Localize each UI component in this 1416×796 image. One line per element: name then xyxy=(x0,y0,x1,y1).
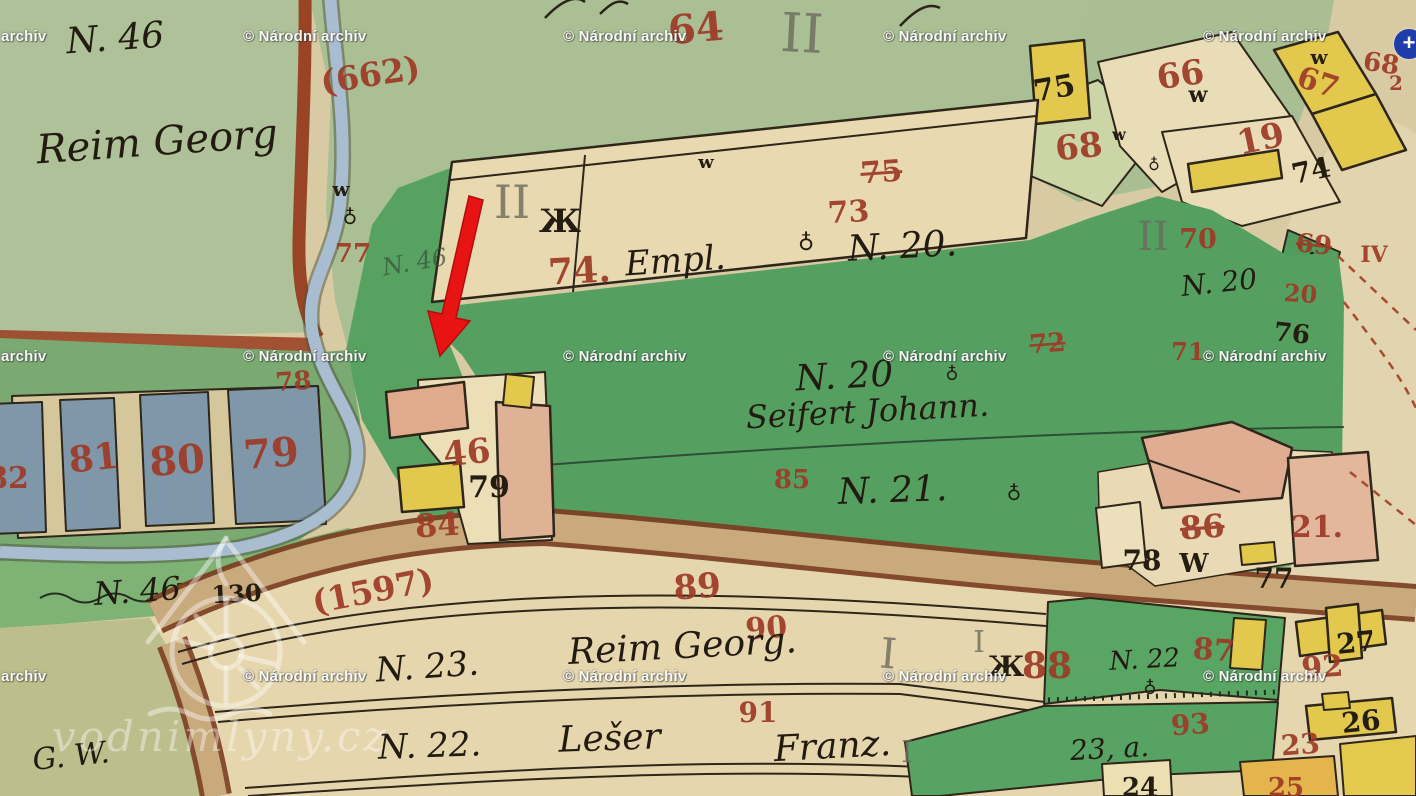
map-label-23: 23 xyxy=(1280,727,1321,763)
map-label-82: 82 xyxy=(0,461,29,496)
map-label-w: w xyxy=(1111,125,1127,144)
map-label-76: 76 xyxy=(1272,317,1311,351)
house-pink-21 xyxy=(1288,452,1378,566)
map-label-w: w xyxy=(697,152,714,173)
map-label-79: 79 xyxy=(468,470,510,505)
map-label-iv: IV xyxy=(1360,242,1388,268)
map-label-ii: II xyxy=(1137,214,1169,260)
map-label-24: 24 xyxy=(1122,773,1158,796)
building-yellow-87 xyxy=(1230,618,1266,670)
map-label-n-46: N. 46 xyxy=(64,15,166,63)
map-label-franz: Franz. xyxy=(772,723,892,770)
map-label-26: 26 xyxy=(1340,703,1382,740)
cadastral-map-image: 64(662)757374.7778(1597)8281807946848572… xyxy=(0,0,1416,796)
map-label-77: 77 xyxy=(1255,562,1294,595)
house-pink-a xyxy=(386,382,468,438)
map-label-72: 72 xyxy=(1028,328,1066,360)
map-label-i: I xyxy=(973,625,985,660)
map-label-69: 69 xyxy=(1294,228,1333,262)
map-label-ii: II xyxy=(779,1,825,66)
zoom-in-button[interactable]: + xyxy=(1394,29,1416,59)
map-label-: ♁ xyxy=(1148,155,1160,174)
building-corner xyxy=(1340,736,1416,796)
map-label-71: 71 xyxy=(1171,337,1204,366)
map-label-88: 88 xyxy=(1022,645,1072,687)
map-label-75: 75 xyxy=(859,154,903,192)
map-label-: ♁ xyxy=(945,364,958,385)
map-label-25: 25 xyxy=(1268,773,1304,796)
map-label-77: 77 xyxy=(335,239,371,269)
map-label-89: 89 xyxy=(672,565,722,608)
map-label-w: W xyxy=(1178,549,1209,579)
map-label-70: 70 xyxy=(1179,224,1217,255)
map-label-85: 85 xyxy=(774,465,810,495)
map-label-80: 80 xyxy=(148,435,207,486)
map-label-i: I xyxy=(901,735,913,770)
map-label-le-er: Lešer xyxy=(557,716,663,761)
map-label-: ♁ xyxy=(798,231,814,256)
map-label-n-20: N. 20. xyxy=(846,223,958,270)
map-label-86: 86 xyxy=(1179,507,1226,548)
map-label-: ♁ xyxy=(1007,481,1022,505)
map-label-n-46: N. 46 xyxy=(92,569,182,613)
map-label-74: 74. xyxy=(547,248,612,293)
map-label-: Ж xyxy=(539,202,581,240)
map-label-n-22: N. 22 xyxy=(1107,643,1180,677)
map-label-68: 68 xyxy=(1053,125,1104,170)
map-label-ii: II xyxy=(494,175,530,229)
map-label-: Ж xyxy=(988,650,1025,683)
map-label-n-21: N. 21. xyxy=(836,468,948,513)
map-label-21: 21. xyxy=(1291,510,1343,545)
map-label-27: 27 xyxy=(1335,624,1377,661)
map-label-: ♁ xyxy=(343,205,358,229)
map-label-n-23: N. 23. xyxy=(373,643,480,690)
map-label-64: 64 xyxy=(666,3,726,55)
map-label-75: 75 xyxy=(1031,68,1078,110)
map-label-81: 81 xyxy=(67,435,121,482)
map-label-: ♁ xyxy=(1143,678,1156,699)
building-yellow-a xyxy=(503,374,534,408)
map-label-78: 78 xyxy=(1123,544,1162,577)
map-label-23-a: 23, a. xyxy=(1068,730,1150,767)
map-label-79: 79 xyxy=(242,428,301,479)
map-label-73: 73 xyxy=(827,194,871,231)
map-label-46: 46 xyxy=(441,431,492,476)
map-label-87: 87 xyxy=(1192,632,1236,670)
map-label-91: 91 xyxy=(739,696,778,729)
map-label-93: 93 xyxy=(1170,707,1211,743)
map-label-n-22: N. 22. xyxy=(376,724,482,768)
map-label-84: 84 xyxy=(414,505,461,546)
map-label-2: 2 xyxy=(1389,71,1403,95)
map-label-empl: Empl. xyxy=(623,238,727,285)
map-label-20: 20 xyxy=(1283,278,1318,309)
map-label-w: w xyxy=(331,177,350,201)
map-label-w: w xyxy=(1309,45,1328,69)
map-label-w: w xyxy=(1188,82,1209,108)
map-label-78: 78 xyxy=(274,366,312,398)
map-canvas[interactable]: 64(662)757374.7778(1597)8281807946848572… xyxy=(0,0,1416,796)
